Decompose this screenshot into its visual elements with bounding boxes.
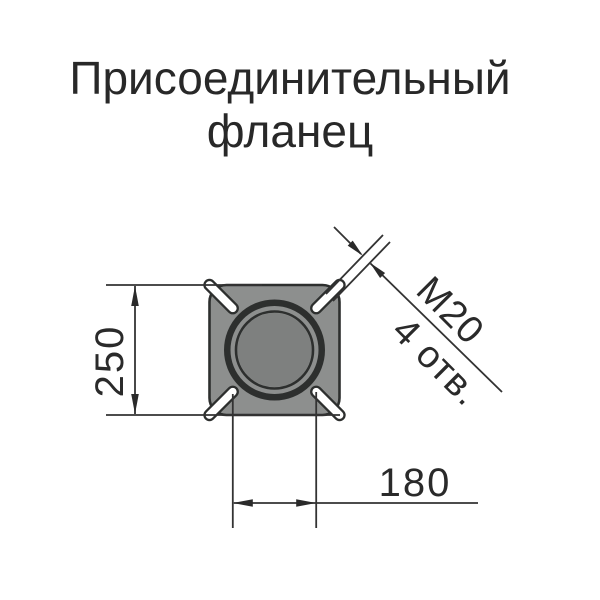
drawing-canvas: Присоединительный фланец 250 bbox=[0, 0, 600, 600]
dim-180-arrow-left-icon bbox=[233, 499, 253, 507]
dim-250-label: 250 bbox=[88, 325, 132, 398]
dim-250-arrow-up-icon bbox=[131, 286, 139, 306]
flange-view bbox=[202, 278, 346, 422]
dim-180-arrow-right-icon bbox=[296, 499, 316, 507]
dim-250-arrow-down-icon bbox=[131, 394, 139, 414]
bore-fill bbox=[238, 313, 312, 387]
dim-180-label: 180 bbox=[379, 461, 452, 505]
flange-drawing: 250 180 M20 4 отв. bbox=[0, 0, 600, 600]
